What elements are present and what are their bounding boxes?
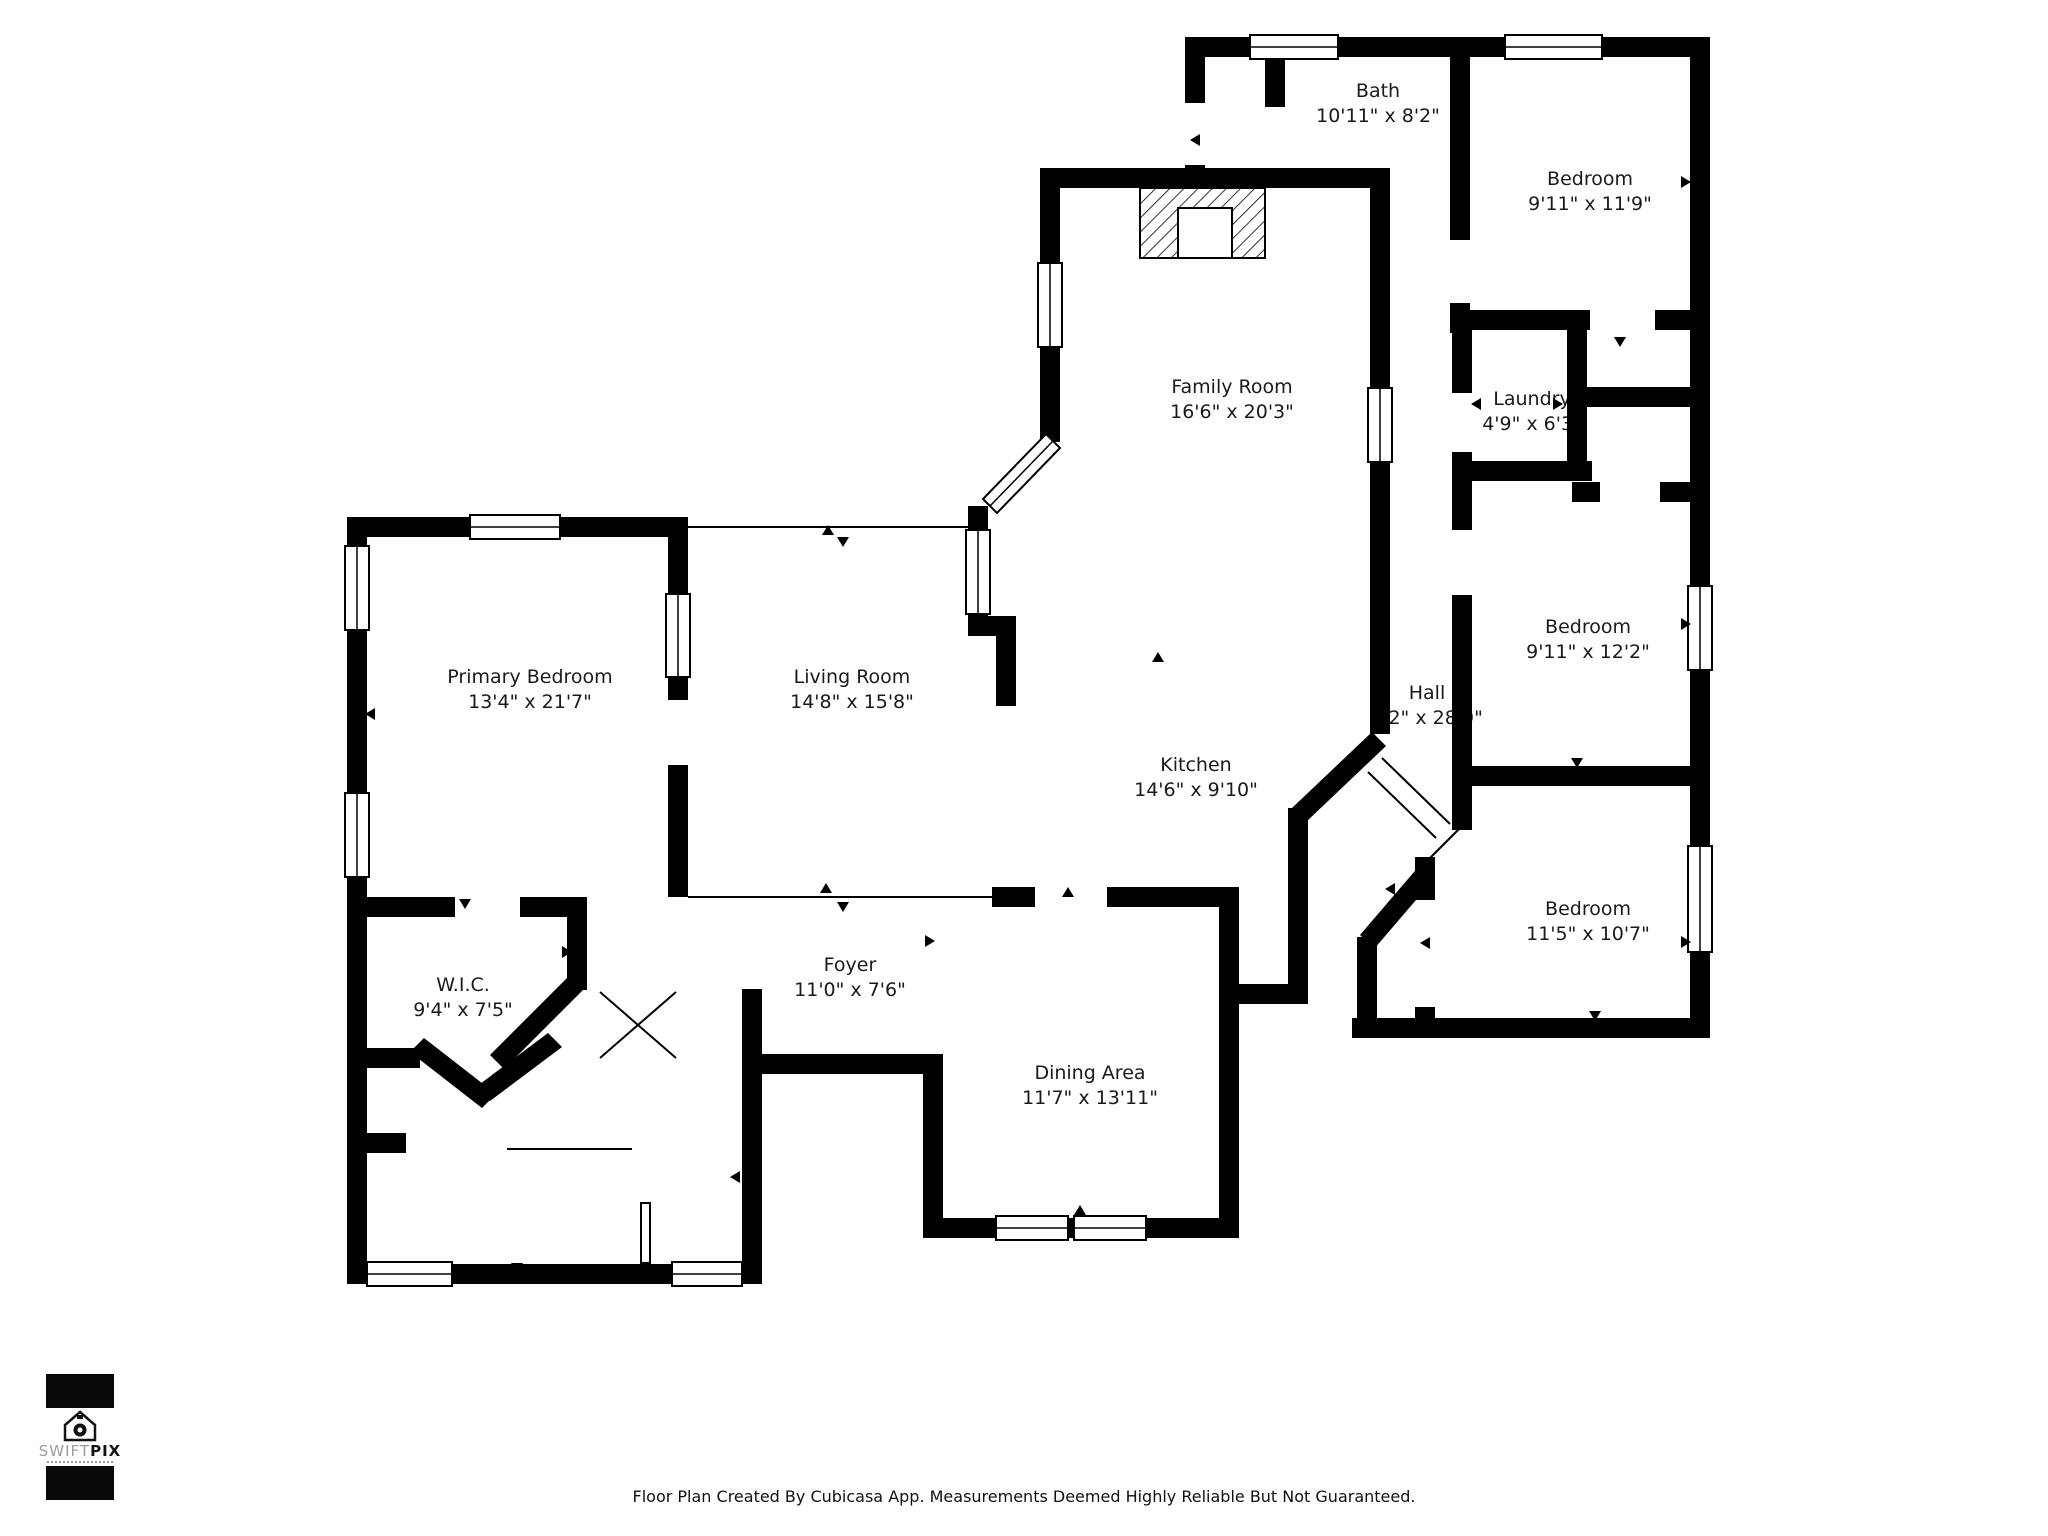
room-label-dining-area: Dining Area11'7" x 13'11" [1022,1061,1158,1111]
room-label-bath: Bath10'11" x 8'2" [1316,79,1440,129]
room-dims: 4'9" x 6'3" [1482,412,1582,437]
swiftpix-logo: SWIFTPIX [42,1374,118,1500]
room-name: Bath [1316,79,1440,104]
room-label-kitchen: Kitchen14'6" x 9'10" [1134,753,1258,803]
room-label-laundry: Laundry4'9" x 6'3" [1482,387,1582,437]
room-name: Dining Area [1022,1061,1158,1086]
room-name: Bedroom [1526,615,1650,640]
room-dims: 9'11" x 11'9" [1528,192,1652,217]
floor-plan-drawing [0,0,2048,1536]
room-name: Family Room [1170,375,1294,400]
logo-wordmark: SWIFTPIX [39,1443,121,1459]
room-dims: 11'5" x 10'7" [1526,922,1650,947]
room-label-foyer: Foyer11'0" x 7'6" [794,953,906,1003]
room-name: Kitchen [1134,753,1258,778]
room-dims: 14'8" x 15'8" [790,690,914,715]
logo-square-top [46,1374,114,1408]
room-dims: 14'6" x 9'10" [1134,778,1258,803]
room-label-family-room: Family Room16'6" x 20'3" [1170,375,1294,425]
room-name: Bedroom [1528,167,1652,192]
room-name: W.I.C. [413,973,513,998]
room-name: Bedroom [1526,897,1650,922]
room-label-wic: W.I.C.9'4" x 7'5" [413,973,513,1023]
room-dims: 11'7" x 13'11" [1022,1086,1158,1111]
room-name: Living Room [790,665,914,690]
room-dims: 9'11" x 12'2" [1526,640,1650,665]
room-name: Foyer [794,953,906,978]
room-dims: 8'2" x 28'9" [1371,706,1483,731]
logo-word-pix: PIX [90,1442,121,1460]
room-name: Primary Bedroom [447,665,612,690]
logo-divider [47,1461,113,1463]
room-label-bedroom-1: Bedroom9'11" x 11'9" [1528,167,1652,217]
fireplace [1140,188,1265,258]
floor-plan: Bath10'11" x 8'2" Bedroom9'11" x 11'9" F… [0,0,2048,1536]
room-dims: 9'4" x 7'5" [413,998,513,1023]
house-camera-icon [62,1410,98,1442]
room-label-primary-bedroom: Primary Bedroom13'4" x 21'7" [447,665,612,715]
room-label-living-room: Living Room14'8" x 15'8" [790,665,914,715]
room-name: Laundry [1482,387,1582,412]
room-dims: 11'0" x 7'6" [794,978,906,1003]
room-label-bedroom-3: Bedroom11'5" x 10'7" [1526,897,1650,947]
room-dims: 16'6" x 20'3" [1170,400,1294,425]
logo-word-swift: SWIFT [39,1442,90,1460]
room-name: Hall [1371,681,1483,706]
room-dims: 10'11" x 8'2" [1316,104,1440,129]
room-dims: 13'4" x 21'7" [447,690,612,715]
footer-disclaimer: Floor Plan Created By Cubicasa App. Meas… [0,1487,2048,1506]
room-label-hall: Hall8'2" x 28'9" [1371,681,1483,731]
room-label-bedroom-2: Bedroom9'11" x 12'2" [1526,615,1650,665]
open-boundaries-and-door-swings [507,527,1464,1263]
